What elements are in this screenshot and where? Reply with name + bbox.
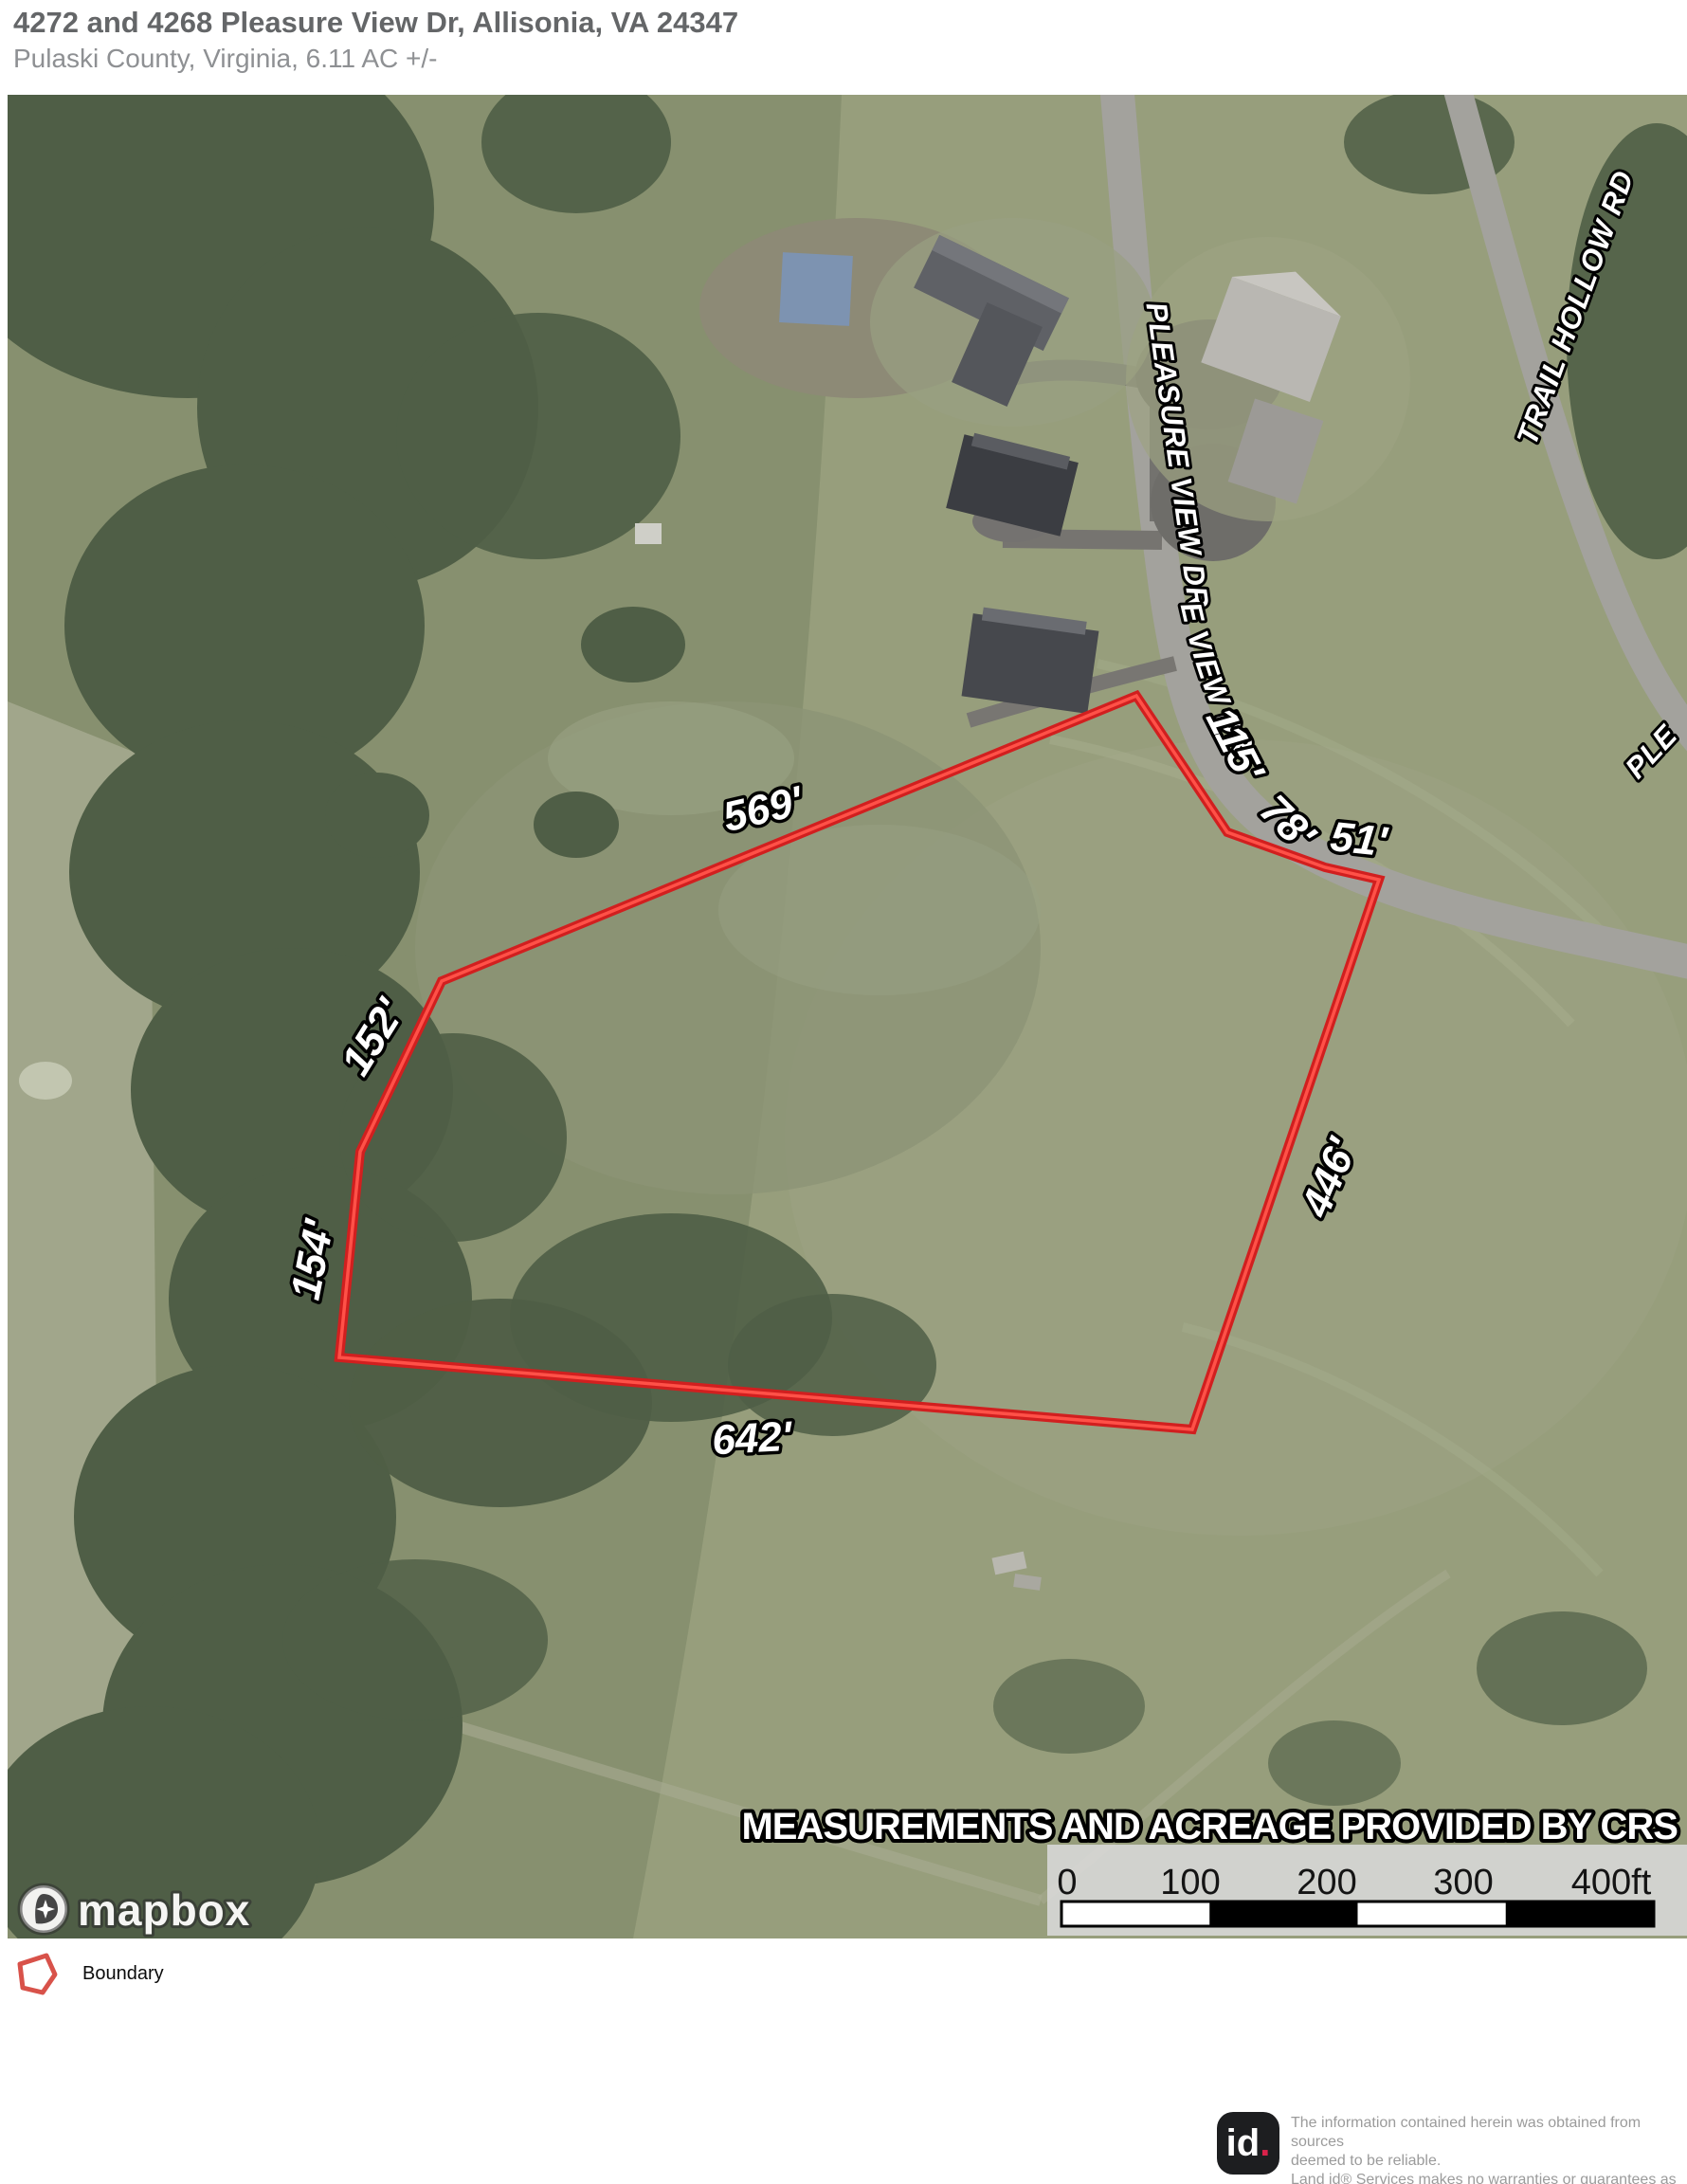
scale-tick-200: 200 <box>1297 1863 1356 1902</box>
scale-bar: 0 100 200 300 400ft <box>1047 1845 1687 1936</box>
disclaimer-line-3: Land id® Services makes no warranties or… <box>1291 2171 1683 2184</box>
listing-header: 4272 and 4268 Pleasure View Dr, Allisoni… <box>13 6 738 74</box>
measurement-south: 642' <box>711 1413 794 1464</box>
landid-logo: id. <box>1217 2112 1279 2175</box>
blue-tarp <box>779 252 853 326</box>
legend: Boundary <box>14 1951 164 1996</box>
shed <box>635 523 662 544</box>
disclaimer-line-2: deemed to be reliable. <box>1291 2152 1683 2171</box>
landid-logo-text: id <box>1226 2122 1261 2165</box>
footer-disclaimer: id. The information contained herein was… <box>1217 2112 1683 2184</box>
scale-tick-400ft: 400ft <box>1571 1863 1652 1902</box>
scale-tick-100: 100 <box>1160 1863 1220 1902</box>
landid-logo-dot: . <box>1260 2122 1270 2165</box>
legend-boundary-label: Boundary <box>82 1963 164 1985</box>
map-svg[interactable]: PLEASURE VIEW DR PLEASURE VIEW DR TRAIL … <box>8 95 1687 1938</box>
map-canvas[interactable]: PLEASURE VIEW DR PLEASURE VIEW DR TRAIL … <box>8 95 1687 1938</box>
mapbox-wordmark[interactable]: mapbox <box>78 1885 250 1935</box>
mapbox-logo[interactable]: mapbox <box>20 1885 250 1935</box>
boundary-polygon-icon <box>14 1951 60 1996</box>
disclaimer-line-1: The information contained herein was obt… <box>1291 2114 1683 2152</box>
measurement-road-seg-3: 51' <box>1328 813 1390 865</box>
listing-title: 4272 and 4268 Pleasure View Dr, Allisoni… <box>13 6 738 40</box>
provider-banner: MEASUREMENTS AND ACREAGE PROVIDED BY CRS <box>741 1806 1678 1847</box>
page: 4272 and 4268 Pleasure View Dr, Allisoni… <box>0 0 1687 2184</box>
house-4 <box>962 608 1099 714</box>
disclaimer-text: The information contained herein was obt… <box>1291 2112 1683 2184</box>
scale-tick-300: 300 <box>1433 1863 1493 1902</box>
listing-subtitle: Pulaski County, Virginia, 6.11 AC +/- <box>13 44 738 74</box>
scale-tick-0: 0 <box>1057 1863 1077 1902</box>
